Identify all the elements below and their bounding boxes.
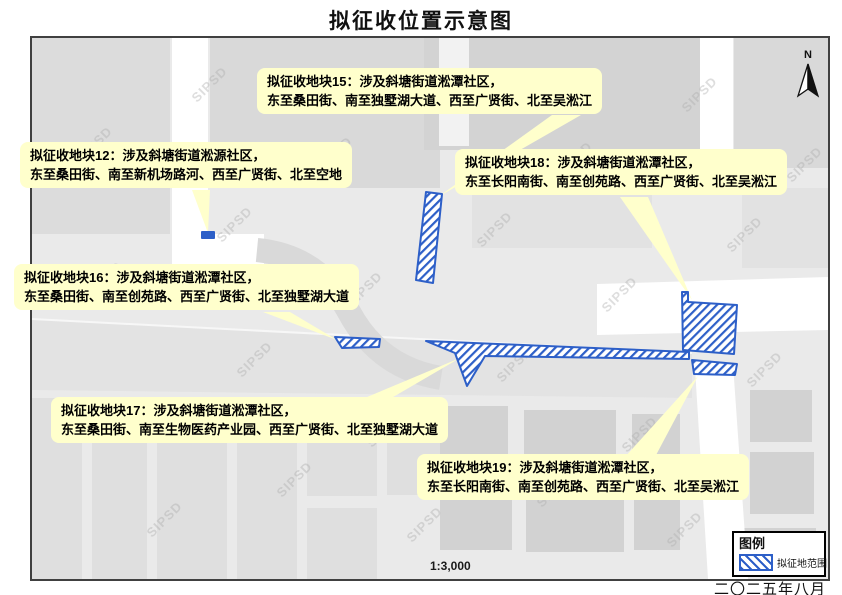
- callout-line1: 拟征收地块16：涉及斜塘街道淞潭社区，: [24, 268, 349, 287]
- callout-line2: 东至长阳南街、南至创苑路、西至广贤街、北至吴淞江: [465, 172, 777, 191]
- date-label: 二〇二五年八月: [560, 578, 826, 595]
- callout-block-19: 拟征收地块19：涉及斜塘街道淞潭社区， 东至长阳南街、南至创苑路、西至广贤街、北…: [417, 454, 749, 500]
- callout-line1: 拟征收地块17：涉及斜塘街道淞潭社区，: [61, 401, 438, 420]
- parcel-15-area: [416, 192, 442, 283]
- parcel-19-area: [692, 360, 737, 375]
- callout-line2: 东至桑田街、南至创苑路、西至广贤街、北至独墅湖大道: [24, 287, 349, 306]
- page: 拟征收位置示意图: [0, 0, 842, 595]
- callout-line2: 东至桑田街、南至新机场路河、西至广贤街、北至空地: [30, 165, 342, 184]
- parcel-16-area: [335, 337, 380, 348]
- callout-line1: 拟征收地块15：涉及斜塘街道淞潭社区，: [267, 72, 592, 91]
- callout-block-17: 拟征收地块17：涉及斜塘街道淞潭社区， 东至桑田街、南至生物医药产业园、西至广贤…: [51, 397, 448, 443]
- callout-block-15: 拟征收地块15：涉及斜塘街道淞潭社区， 东至桑田街、南至独墅湖大道、西至广贤街、…: [257, 68, 602, 114]
- callout-line1: 拟征收地块12：涉及斜塘街道淞源社区，: [30, 146, 342, 165]
- callout-line1: 拟征收地块18：涉及斜塘街道淞潭社区，: [465, 153, 777, 172]
- callout-block-16: 拟征收地块16：涉及斜塘街道淞潭社区， 东至桑田街、南至创苑路、西至广贤街、北至…: [14, 264, 359, 310]
- callout-block-12: 拟征收地块12：涉及斜塘街道淞源社区， 东至桑田街、南至新机场路河、西至广贤街、…: [20, 142, 352, 188]
- svg-text:N: N: [804, 49, 812, 61]
- callout-line2: 东至桑田街、南至生物医药产业园、西至广贤街、北至独墅湖大道: [61, 420, 438, 439]
- legend-item: 拟征地范围: [739, 554, 819, 571]
- callout-line2: 东至长阳南街、南至创苑路、西至广贤街、北至吴淞江: [427, 477, 739, 496]
- page-title: 拟征收位置示意图: [0, 5, 842, 35]
- legend-item-label: 拟征地范围: [777, 555, 827, 570]
- watermark-text: SIPSD: [404, 503, 446, 545]
- legend-box: 图例 拟征地范围: [732, 531, 826, 577]
- parcel-12-marker: [202, 232, 214, 238]
- hatch-swatch-icon: [739, 554, 773, 571]
- scale-label: 1:3,000: [430, 559, 471, 573]
- watermark-text: SIPSD: [744, 348, 786, 390]
- callout-line1: 拟征收地块19：涉及斜塘街道淞潭社区，: [427, 458, 739, 477]
- legend-title: 图例: [739, 536, 819, 551]
- callout-block-18: 拟征收地块18：涉及斜塘街道淞潭社区， 东至长阳南街、南至创苑路、西至广贤街、北…: [455, 149, 787, 195]
- callout-line2: 东至桑田街、南至独墅湖大道、西至广贤街、北至吴淞江: [267, 91, 592, 110]
